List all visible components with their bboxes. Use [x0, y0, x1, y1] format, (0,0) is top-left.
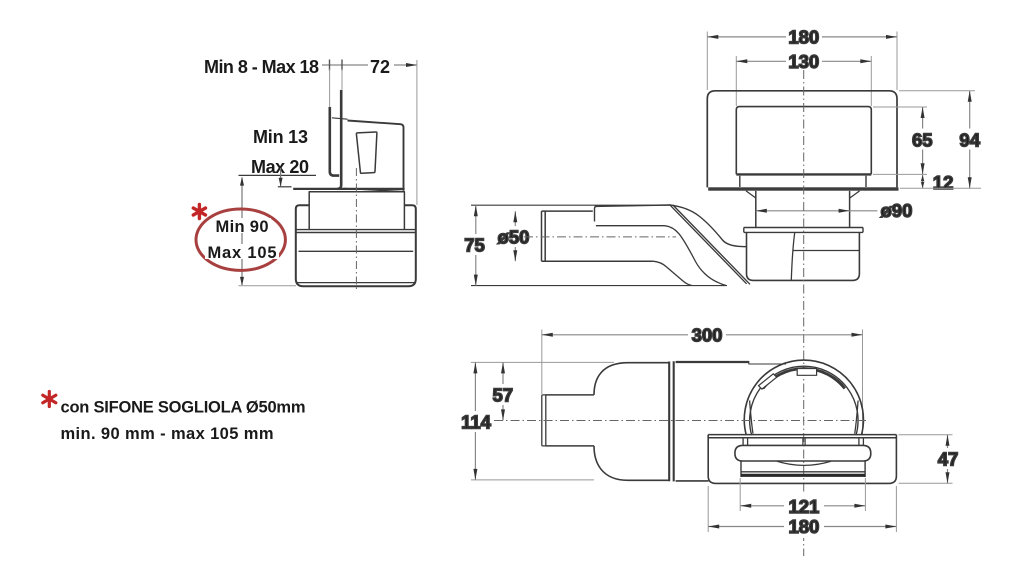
svg-text:180: 180 [788, 27, 819, 48]
svg-text:130: 130 [788, 51, 819, 72]
svg-text:Min 8 - Max 18: Min 8 - Max 18 [204, 57, 319, 77]
svg-text:57: 57 [493, 385, 514, 406]
svg-text:72: 72 [370, 57, 390, 77]
svg-text:12: 12 [933, 172, 954, 193]
svg-text:47: 47 [938, 449, 959, 470]
svg-text:300: 300 [692, 324, 723, 345]
svg-text:65: 65 [912, 129, 933, 150]
svg-text:121: 121 [788, 496, 819, 517]
svg-text:con SIFONE SOGLIOLA Ø50mm: con SIFONE SOGLIOLA Ø50mm [61, 399, 306, 417]
svg-text:min. 90 mm - max 105 mm: min. 90 mm - max 105 mm [61, 425, 274, 443]
svg-text:ø90: ø90 [881, 200, 913, 221]
svg-text:Min 13: Min 13 [253, 127, 308, 147]
svg-text:75: 75 [464, 235, 485, 256]
svg-text:94: 94 [959, 129, 980, 150]
svg-text:180: 180 [788, 516, 819, 537]
svg-text:114: 114 [461, 412, 492, 433]
svg-text:Max 105: Max 105 [208, 244, 277, 262]
svg-text:Min 90: Min 90 [216, 218, 269, 236]
